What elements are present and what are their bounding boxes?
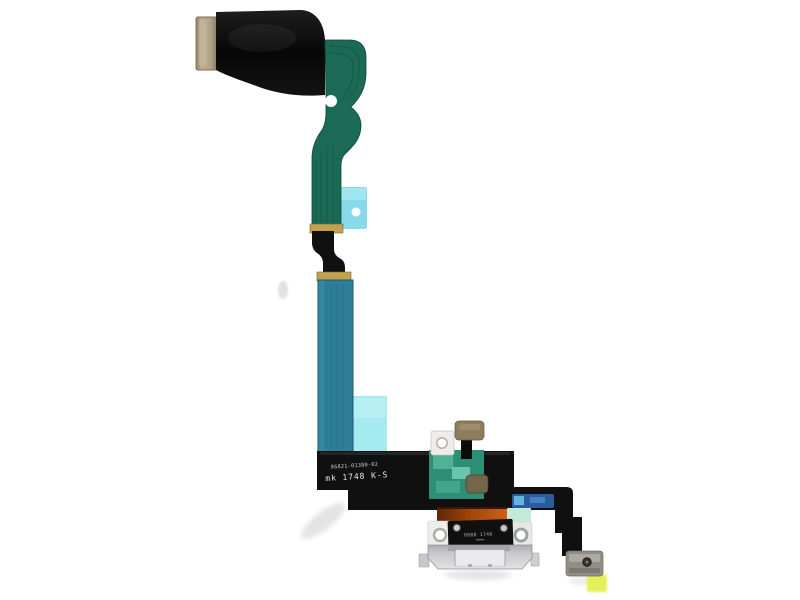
screw-head-left xyxy=(453,524,460,531)
flex-cutout-hole xyxy=(325,95,337,107)
pad-mottle xyxy=(436,481,460,493)
tab-highlight xyxy=(199,20,207,66)
mic-flex-stem xyxy=(461,438,472,459)
mic-sheen xyxy=(459,424,480,430)
screw-hole-glint xyxy=(586,561,589,564)
lightning-housing xyxy=(419,545,539,569)
yellow-highlight-pad xyxy=(587,574,607,592)
ear-screw-hole xyxy=(515,529,527,541)
flex-sheen xyxy=(228,24,296,52)
screw-head-right xyxy=(500,524,507,531)
mic-bracket xyxy=(431,431,454,455)
housing-notch xyxy=(468,564,472,567)
housing-tab-left xyxy=(419,554,429,567)
shadow xyxy=(444,570,512,580)
connector-body: 8888 1748 xyxy=(448,519,514,548)
sticker-hole xyxy=(352,208,361,217)
adhesive-sticker-upper xyxy=(340,187,367,229)
connector-marking-text: 8888 1748 xyxy=(464,532,493,539)
ear-screw-hole xyxy=(434,529,446,541)
strip-glint xyxy=(514,496,524,505)
bracket-shade xyxy=(569,568,600,573)
flex-cable-photo: 06821-01380-02 mk 1748 K-S xyxy=(0,0,800,600)
product-photo: 06821-01380-02 mk 1748 K-S xyxy=(0,0,800,600)
photo-smudge xyxy=(278,281,288,299)
microphone-component-bottom xyxy=(466,475,488,493)
copper-edge xyxy=(437,507,510,509)
pad-mottle xyxy=(433,455,453,469)
lightning-connector: 8888 1748 xyxy=(419,507,539,569)
microphone-module xyxy=(429,421,488,499)
sticker-sheen xyxy=(350,398,385,418)
sticker-sheen xyxy=(341,188,366,200)
blue-flex-ribbon xyxy=(318,280,353,452)
housing-notch xyxy=(488,564,492,567)
bracket-screw-hole xyxy=(437,438,447,448)
strip-glint xyxy=(530,497,545,503)
antenna-arm-adhesive xyxy=(512,494,554,508)
ribbon-highlight xyxy=(319,281,325,451)
port-opening xyxy=(455,550,505,566)
connector-mark-dash xyxy=(476,539,484,541)
microphone-component-top xyxy=(455,421,484,440)
